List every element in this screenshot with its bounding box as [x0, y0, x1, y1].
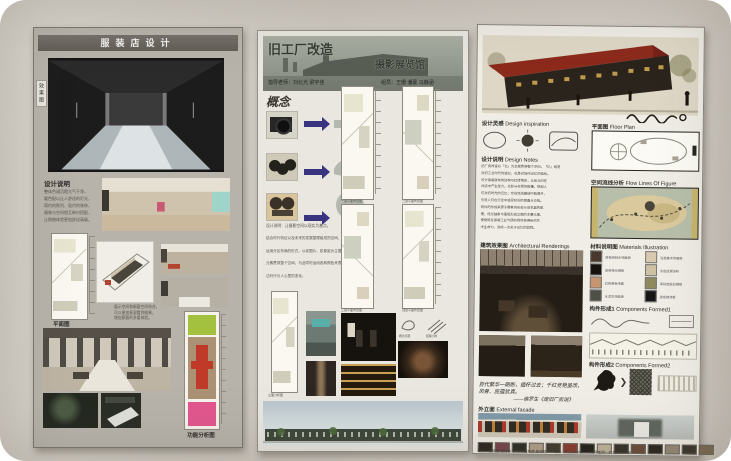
function-diagram-label: 功能分析图	[178, 431, 224, 439]
left-plan-label: 平面图	[53, 320, 70, 328]
film-frame	[699, 445, 714, 455]
facade-photo-misty	[586, 414, 694, 439]
text-line: 达时代与人心里的变化。	[266, 270, 344, 283]
photo-dark-interior-1	[43, 393, 98, 428]
header-panorama-image: 旧工厂改造 摄影展览馆 指导老师：刘北光 梁宇佳 组员：王珊 潘蒙 马静涵	[263, 36, 463, 91]
axonometric-model-image	[96, 241, 154, 303]
material-label: 军绿色做旧钢板	[660, 281, 682, 286]
material-swatch	[645, 264, 657, 276]
material-row: 浅色橡木饰面板	[645, 251, 696, 264]
film-reel-photo	[266, 153, 298, 181]
interior-rendering-dark-tunnel	[48, 58, 224, 172]
plan2-dimensions	[435, 89, 441, 194]
left-spatial-text: 展示空间和橱窗空间结合，可以更加直观看到效果，增加顾客的多重体验。	[114, 305, 174, 322]
inspiration-sketches	[481, 127, 581, 154]
exterior-elevation-strip	[263, 401, 463, 446]
trees-graphic	[263, 423, 463, 445]
flow-diagram-graphic	[591, 187, 698, 238]
axonometric-graphic	[97, 242, 153, 302]
rendering-small-2	[531, 336, 582, 378]
flow-lines-diagram	[590, 186, 699, 239]
plan2-caption: 二层平面布置图	[402, 199, 423, 203]
material-row: 深色胡桃木饰面板	[590, 250, 641, 263]
material-label: 米色肌理涂料	[660, 268, 679, 273]
floor-plan-1	[341, 86, 374, 200]
middle-title: 旧工厂改造	[268, 39, 333, 58]
material-swatch	[590, 289, 602, 301]
floor-plan-4	[402, 204, 434, 309]
elevation-roofline	[590, 336, 696, 347]
floor-plan-3	[341, 204, 374, 309]
function-analysis-diagram	[184, 311, 220, 430]
left-poster-side-label: 效果图	[36, 80, 47, 107]
text-line: 简约的陈列、现代的装饰，	[44, 202, 100, 209]
left-floor-plan-drawing	[51, 233, 88, 320]
photo-of-wall: 服装店设计 效果图 设计说明 整体色调沉稳大气干净，暖色配以让人舒适的灯光，简约…	[0, 0, 731, 461]
elevation-marks	[592, 349, 694, 355]
arrow-right-icon	[304, 215, 322, 221]
right-poster-bilingual: 设计灵感 Design inspiration 设计说明 Design Note…	[472, 24, 705, 457]
bench-block-1	[498, 300, 515, 312]
quote-attribution: ——佛罗生《废旧厂房说》	[513, 395, 573, 403]
plan-dimension-line	[89, 236, 95, 314]
camera-photo	[266, 111, 298, 139]
plan4-dimensions	[435, 207, 441, 304]
dancer-figure-sketch	[591, 368, 615, 396]
photo-alley-warm	[306, 361, 336, 396]
comp2-elevation-mini	[658, 375, 697, 391]
hand-drawn-floor-plan	[591, 130, 699, 171]
materials-swatch-grid: 深色胡桃木饰面板浅色橡木饰面板黑色哑光钢板米色肌理涂料红砖原色饰面军绿色做旧钢板…	[590, 250, 697, 301]
photo-gallery-dark	[341, 313, 396, 361]
text-line: 增加顾客的多重体验。	[114, 316, 174, 322]
text-line: 术生命力，完成一次关于记忆的旅程。	[480, 224, 583, 232]
facade-figures-pattern	[478, 421, 581, 433]
text-line: 运用分区布局的形式，以老图片、胶卷纸为主要	[266, 245, 344, 258]
building-rendering-red-roof	[482, 35, 699, 116]
left-design-notes-heading: 设计说明	[44, 178, 70, 188]
photo-fisheye-dark	[398, 341, 448, 378]
arrow-right-icon	[304, 121, 322, 127]
material-swatch	[645, 277, 657, 289]
material-row: 黑色烤漆板	[645, 290, 696, 303]
components1-sketch	[589, 312, 695, 331]
material-label: 水泥灰饰面板	[605, 293, 624, 298]
text-line: 服装与空间相互映衬搭配，	[44, 209, 100, 216]
wall-background: 服装店设计 效果图 设计说明 整体色调沉稳大气干净，暖色配以让人舒适的灯光，简约…	[0, 0, 731, 461]
projector-photo	[266, 193, 298, 221]
middle-members: 组员：王珊 潘蒙 马静涵	[381, 79, 434, 86]
signature-scribble	[625, 111, 689, 124]
interior-rendering-beige-store	[102, 178, 230, 231]
material-swatch	[590, 250, 602, 262]
photo-interior-teal	[306, 311, 336, 356]
left-poster-clothing-store: 服装店设计 效果图 设计说明 整体色调沉稳大气干净，暖色配以让人舒适的灯光，简约…	[33, 27, 243, 448]
material-row: 米色肌理涂料	[645, 264, 696, 277]
func-zone-brown	[188, 337, 216, 399]
text-line: 结合时代特征以及未来的发展整理组成的空间，	[266, 232, 344, 245]
material-row: 水泥灰饰面板	[590, 289, 641, 302]
window-mullions	[480, 249, 583, 267]
text-line: 元素贯穿整个空间，与此同时运用各种颜色来表	[266, 257, 344, 270]
func-dimension-line	[221, 314, 226, 424]
plan4-caption: 顶层平面布置图	[402, 308, 423, 312]
material-row: 黑色哑光钢板	[590, 263, 641, 276]
func-zone-green	[188, 315, 216, 335]
tunnel-rendering-graphic	[48, 58, 224, 172]
middle-poster-factory-renovation: 旧工厂改造 摄影展览馆 指导老师：刘北光 梁宇佳 组员：王珊 潘蒙 马静涵 概念…	[257, 30, 469, 452]
texture-sample-block	[629, 369, 651, 395]
interior-rendering-red-accent	[161, 244, 228, 274]
text-line: 让购物体验更加舒适高级。	[44, 216, 100, 223]
elevation-plan-caption: 立面分析图	[268, 393, 283, 397]
rendering-large-dark-interior	[479, 249, 583, 332]
left-poster-title: 服装店设计	[38, 35, 238, 51]
text-line: 整体色调沉稳大气干净，	[44, 188, 100, 195]
curtain-highlight	[633, 422, 648, 437]
material-swatch	[645, 290, 657, 302]
text-line: 暖色配以让人舒适的灯光，	[44, 195, 100, 202]
material-swatch	[590, 263, 602, 275]
plan3-caption: 三层平面布置图	[341, 308, 362, 312]
elevation-analysis-plan	[271, 291, 298, 393]
store-runway-graphic	[43, 328, 171, 391]
design-notes-paragraph: 旧厂房改造以「忆」为主题贯穿整个空间，「忆」既是对旧工业时代的追忆，也是对场所记…	[480, 163, 584, 232]
concept-sketch-items	[398, 316, 448, 336]
material-label: 黑色哑光钢板	[605, 267, 624, 272]
plan1-dimensions	[375, 89, 381, 194]
photo-lit-shelves	[341, 364, 396, 396]
photo-dark-interior-2	[101, 393, 141, 428]
middle-subtitle: 摄影展览馆	[375, 56, 425, 71]
floor-plan-graphic	[592, 131, 698, 170]
photo2-highlight	[101, 393, 141, 428]
floor-plan-2	[402, 86, 434, 200]
material-swatch	[590, 276, 602, 288]
rendering-small-1	[479, 335, 525, 377]
concept-heading: 概念	[266, 93, 290, 110]
interior-rendering-gray	[161, 277, 228, 307]
sketch-caption-1: 概念草图	[399, 334, 410, 338]
middle-description-text: 结合时代特征以及未来的发展整理组成的空间，运用分区布局的形式，以老图片、胶卷纸为…	[266, 232, 344, 282]
concept-note-text: 设计说明：让摄影空间以现实为基点，	[266, 224, 331, 229]
material-label: 深色胡桃木饰面板	[605, 254, 631, 259]
material-row: 军绿色做旧钢板	[645, 277, 696, 290]
material-row: 红砖原色饰面	[590, 276, 641, 289]
middle-advisors: 指导老师：刘北光 梁宇佳	[268, 79, 324, 86]
plan1-caption: 一层平面布置图	[341, 199, 362, 203]
material-label: 红砖原色饰面	[605, 280, 624, 285]
arrow-right-icon	[304, 169, 322, 175]
components1-elevation-strip	[589, 332, 697, 359]
comp2-arrow: ❯	[620, 377, 628, 388]
teal-accent	[312, 319, 330, 327]
interior-rendering-store-runway	[43, 328, 171, 391]
quote-line-2: 风骨、底蕴犹真。	[478, 388, 520, 396]
material-swatch	[645, 251, 657, 263]
left-design-notes-text: 整体色调沉稳大气干净，暖色配以让人舒适的灯光，简约的陈列、现代的装饰，服装与空间…	[44, 188, 100, 223]
building-graphic	[482, 35, 699, 116]
bench-block-2	[529, 305, 548, 318]
sketch-caption-2: 肌理小样	[426, 334, 437, 338]
facade-photo-colorful	[478, 413, 581, 438]
func-zone-pink	[188, 402, 216, 426]
material-label: 浅色橡木饰面板	[660, 255, 682, 260]
material-label: 黑色烤漆板	[660, 294, 676, 299]
func-red-t-bar	[191, 361, 213, 369]
